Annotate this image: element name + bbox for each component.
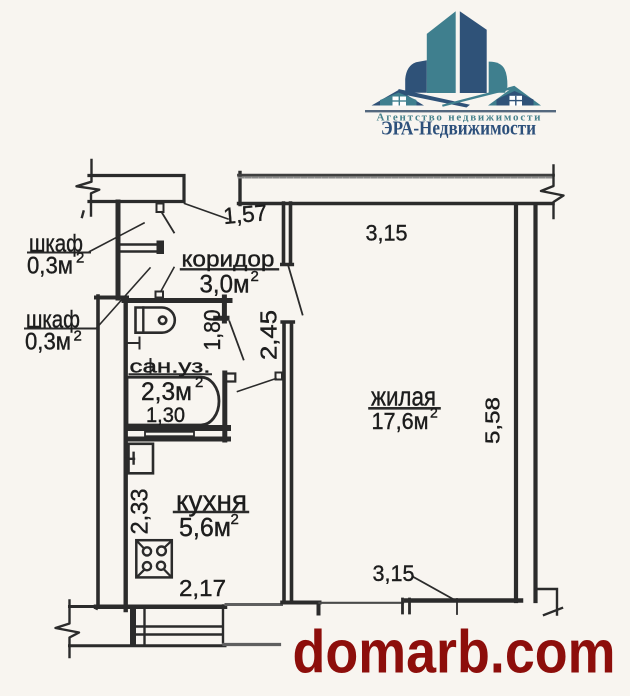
svg-text:2: 2 — [231, 511, 239, 528]
svg-text:17,6м: 17,6м — [372, 408, 429, 434]
svg-text:2: 2 — [430, 405, 438, 421]
svg-text:1,57: 1,57 — [222, 199, 268, 229]
svg-text:0,3м: 0,3м — [25, 329, 71, 356]
svg-text:5,6м: 5,6м — [179, 514, 231, 542]
svg-text:2,33: 2,33 — [127, 489, 154, 535]
svg-text:2,45: 2,45 — [256, 310, 282, 360]
svg-text:3,15: 3,15 — [373, 561, 415, 586]
svg-text:3,0м: 3,0м — [200, 271, 250, 299]
svg-text:3,15: 3,15 — [366, 221, 408, 246]
svg-text:2: 2 — [76, 249, 84, 266]
svg-text:2: 2 — [74, 328, 82, 345]
svg-text:2,3м: 2,3м — [141, 378, 192, 406]
svg-text:2: 2 — [195, 374, 203, 391]
svg-text:1,80: 1,80 — [199, 310, 225, 351]
svg-text:1,30: 1,30 — [146, 404, 185, 427]
svg-text:коридор: коридор — [182, 247, 275, 272]
svg-text:2: 2 — [251, 268, 259, 285]
svg-text:0,3м: 0,3м — [27, 253, 73, 280]
svg-text:domarb.com: domarb.com — [293, 619, 616, 686]
svg-text:ЭРА-Недвижимости: ЭРА-Недвижимости — [381, 118, 536, 140]
svg-text:2,17: 2,17 — [179, 575, 226, 601]
svg-text:5,58: 5,58 — [483, 397, 505, 444]
